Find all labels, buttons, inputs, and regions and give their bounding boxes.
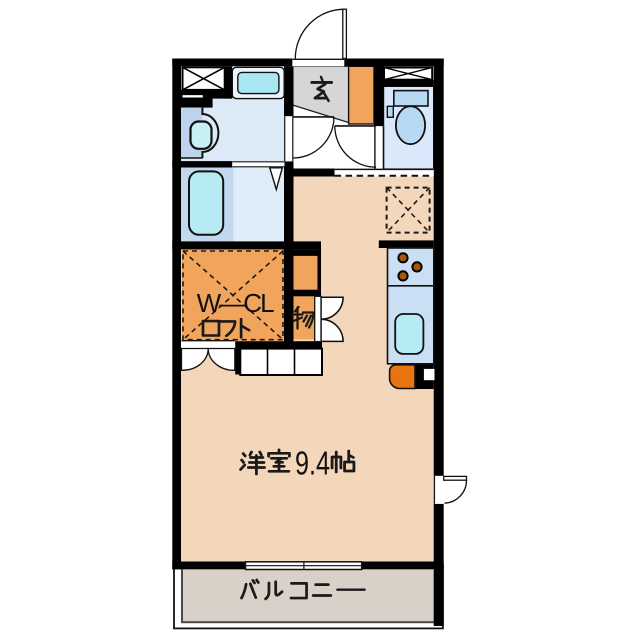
svg-text:W—CL: W—CL <box>197 288 275 318</box>
svg-text:9.4: 9.4 <box>295 445 330 482</box>
